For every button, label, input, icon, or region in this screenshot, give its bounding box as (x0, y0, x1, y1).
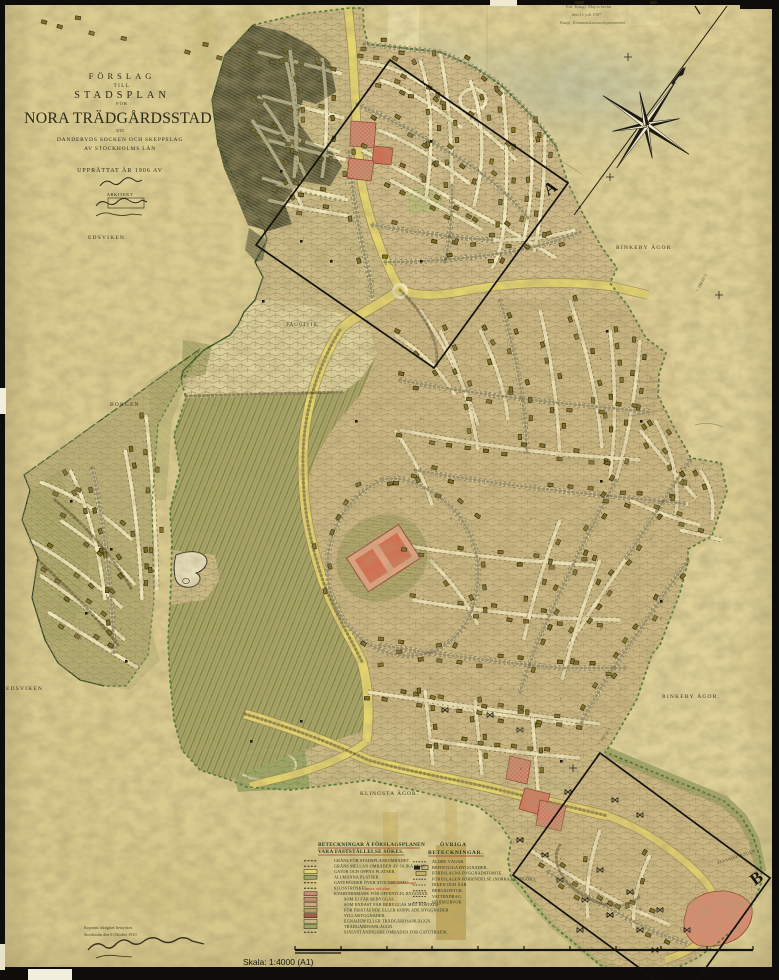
svg-text:Skala: 1:4000 (A1): Skala: 1:4000 (A1) (243, 957, 314, 967)
svg-text:GRÄNS FÖR STADSPLANEOMRÅDET.: GRÄNS FÖR STADSPLANEOMRÅDET. (334, 858, 410, 863)
svg-text:KVARTERSMARK FÖR OFFENTLIG BYG: KVARTERSMARK FÖR OFFENTLIG BYGGNAD (334, 891, 428, 896)
svg-text:Kopians riktighet bestyrkes: Kopians riktighet bestyrkes (84, 925, 133, 930)
svg-text:UPPRÄTTAT ÅR 1906 AV: UPPRÄTTAT ÅR 1906 AV (77, 166, 163, 174)
svg-text:morr. vid plan.: morr. vid plan. (366, 886, 391, 891)
svg-text:FÖR FRISTÅENDE ELLER KOPPLADE: FÖR FRISTÅENDE ELLER KOPPLADE BYGGNADER (344, 908, 449, 913)
svg-text:RINKEBY ÄGOR: RINKEBY ÄGOR (616, 244, 672, 251)
svg-text:VILLABYGGNADER: VILLABYGGNADER (344, 913, 385, 918)
svg-text:KLINGSTA ÄGOR.: KLINGSTA ÄGOR. (360, 790, 419, 797)
svg-text:DANDERYDS SOCKEN OCH SKEPPSLAG: DANDERYDS SOCKEN OCH SKEPPSLAG (57, 137, 183, 143)
svg-text:TRÄDGÅRDSANLÄGGN.: TRÄDGÅRDSANLÄGGN. (344, 924, 394, 929)
svg-text:SOM EJ FÅR BEBYGGAS.: SOM EJ FÅR BEBYGGAS. (344, 897, 395, 902)
svg-text:TILL: TILL (114, 84, 131, 89)
svg-text:FÖR: FÖR (116, 101, 128, 106)
svg-text:RINKEBY ÄGOR.: RINKEBY ÄGOR. (662, 693, 720, 700)
svg-text:DIKEN OCH ÅAR.: DIKEN OCH ÅAR. (432, 882, 468, 887)
svg-text:BERGKONTUR.: BERGKONTUR. (432, 888, 463, 893)
svg-text:den 11 juli 1907: den 11 juli 1907 (572, 12, 602, 17)
svg-text:Kungl. Kommunikationsdeparteme: Kungl. Kommunikationsdepartementet (560, 20, 626, 25)
svg-text:UTI: UTI (116, 128, 124, 133)
svg-text:ARKITEKT: ARKITEKT (107, 192, 134, 197)
svg-text:SLUSSTRÖSKEL.: SLUSSTRÖSKEL. (334, 886, 368, 891)
svg-text:Stockholm den 6 Oktober 1910: Stockholm den 6 Oktober 1910 (84, 932, 137, 937)
svg-text:ÄLDRE VÄGAR.: ÄLDRE VÄGAR. (432, 859, 465, 864)
svg-text:AV STOCKHOLMS LÄN: AV STOCKHOLMS LÄN (84, 145, 156, 152)
svg-text:GRÄNS MELLAN OMRÅDEN AV OLIKA: GRÄNS MELLAN OMRÅDEN AV OLIKA SLAG (334, 864, 426, 869)
svg-text:EDSVIKEN: EDSVIKEN (88, 235, 125, 241)
svg-text:EGNAHEM ELLER TRÄDGÅRDSANLÄGGN: EGNAHEM ELLER TRÄDGÅRDSANLÄGGN. (344, 919, 432, 924)
svg-text:EDSVIKEN: EDSVIKEN (6, 686, 43, 692)
svg-text:SOM ENDAST FÅR BEBYGGAS MED BO: SOM ENDAST FÅR BEBYGGAS MED BOSTADS- (344, 902, 441, 907)
svg-text:BETECKNINGAR.: BETECKNINGAR. (428, 850, 483, 856)
svg-text:FÖRESLAGNA BYGGNADSTOMTE.: FÖRESLAGNA BYGGNADSTOMTE. (432, 871, 503, 876)
svg-text:ALLMÄNNA PLATSER.: ALLMÄNNA PLATSER. (334, 875, 380, 880)
svg-text:BETECKNINGAR Å FÖRSLAGSPLANEN: BETECKNINGAR Å FÖRSLAGSPLANEN (318, 840, 425, 848)
svg-text:Enl. Kungl. Maj:ts beslut: Enl. Kungl. Maj:ts beslut (566, 4, 612, 9)
svg-text:FÖRSLAG: FÖRSLAG (89, 71, 156, 81)
svg-text:HÖJDKURVOR.: HÖJDKURVOR. (432, 900, 463, 905)
svg-text:ÖVRIGA: ÖVRIGA (440, 841, 467, 848)
svg-text:STADSPLAN: STADSPLAN (74, 90, 170, 101)
svg-text:VATTENDRAG.: VATTENDRAG. (432, 894, 462, 899)
svg-text:BORGEN: BORGEN (110, 402, 140, 408)
svg-text:FÖRESLAGEN FÖRBINDELSE (NORRA: FÖRESLAGEN FÖRBINDELSE (NORRA LIDINGÖB.) (432, 876, 536, 881)
svg-text:GATOR OCH ÖPPNA PLATSER.: GATOR OCH ÖPPNA PLATSER. (334, 869, 396, 874)
svg-text:.FAGGIVIK: .FAGGIVIK (284, 323, 318, 328)
svg-text:BEFINTLIGA BYGGNADER.: BEFINTLIGA BYGGNADER. (432, 865, 488, 870)
svg-text:SJÄLVSTÄNDIGARE OMRÅDEN FÖR GA: SJÄLVSTÄNDIGARE OMRÅDEN FÖR GATUTRAFIK. (344, 930, 448, 935)
svg-text:NORA TRÄDGÅRDSSTAD: NORA TRÄDGÅRDSSTAD (24, 109, 212, 127)
